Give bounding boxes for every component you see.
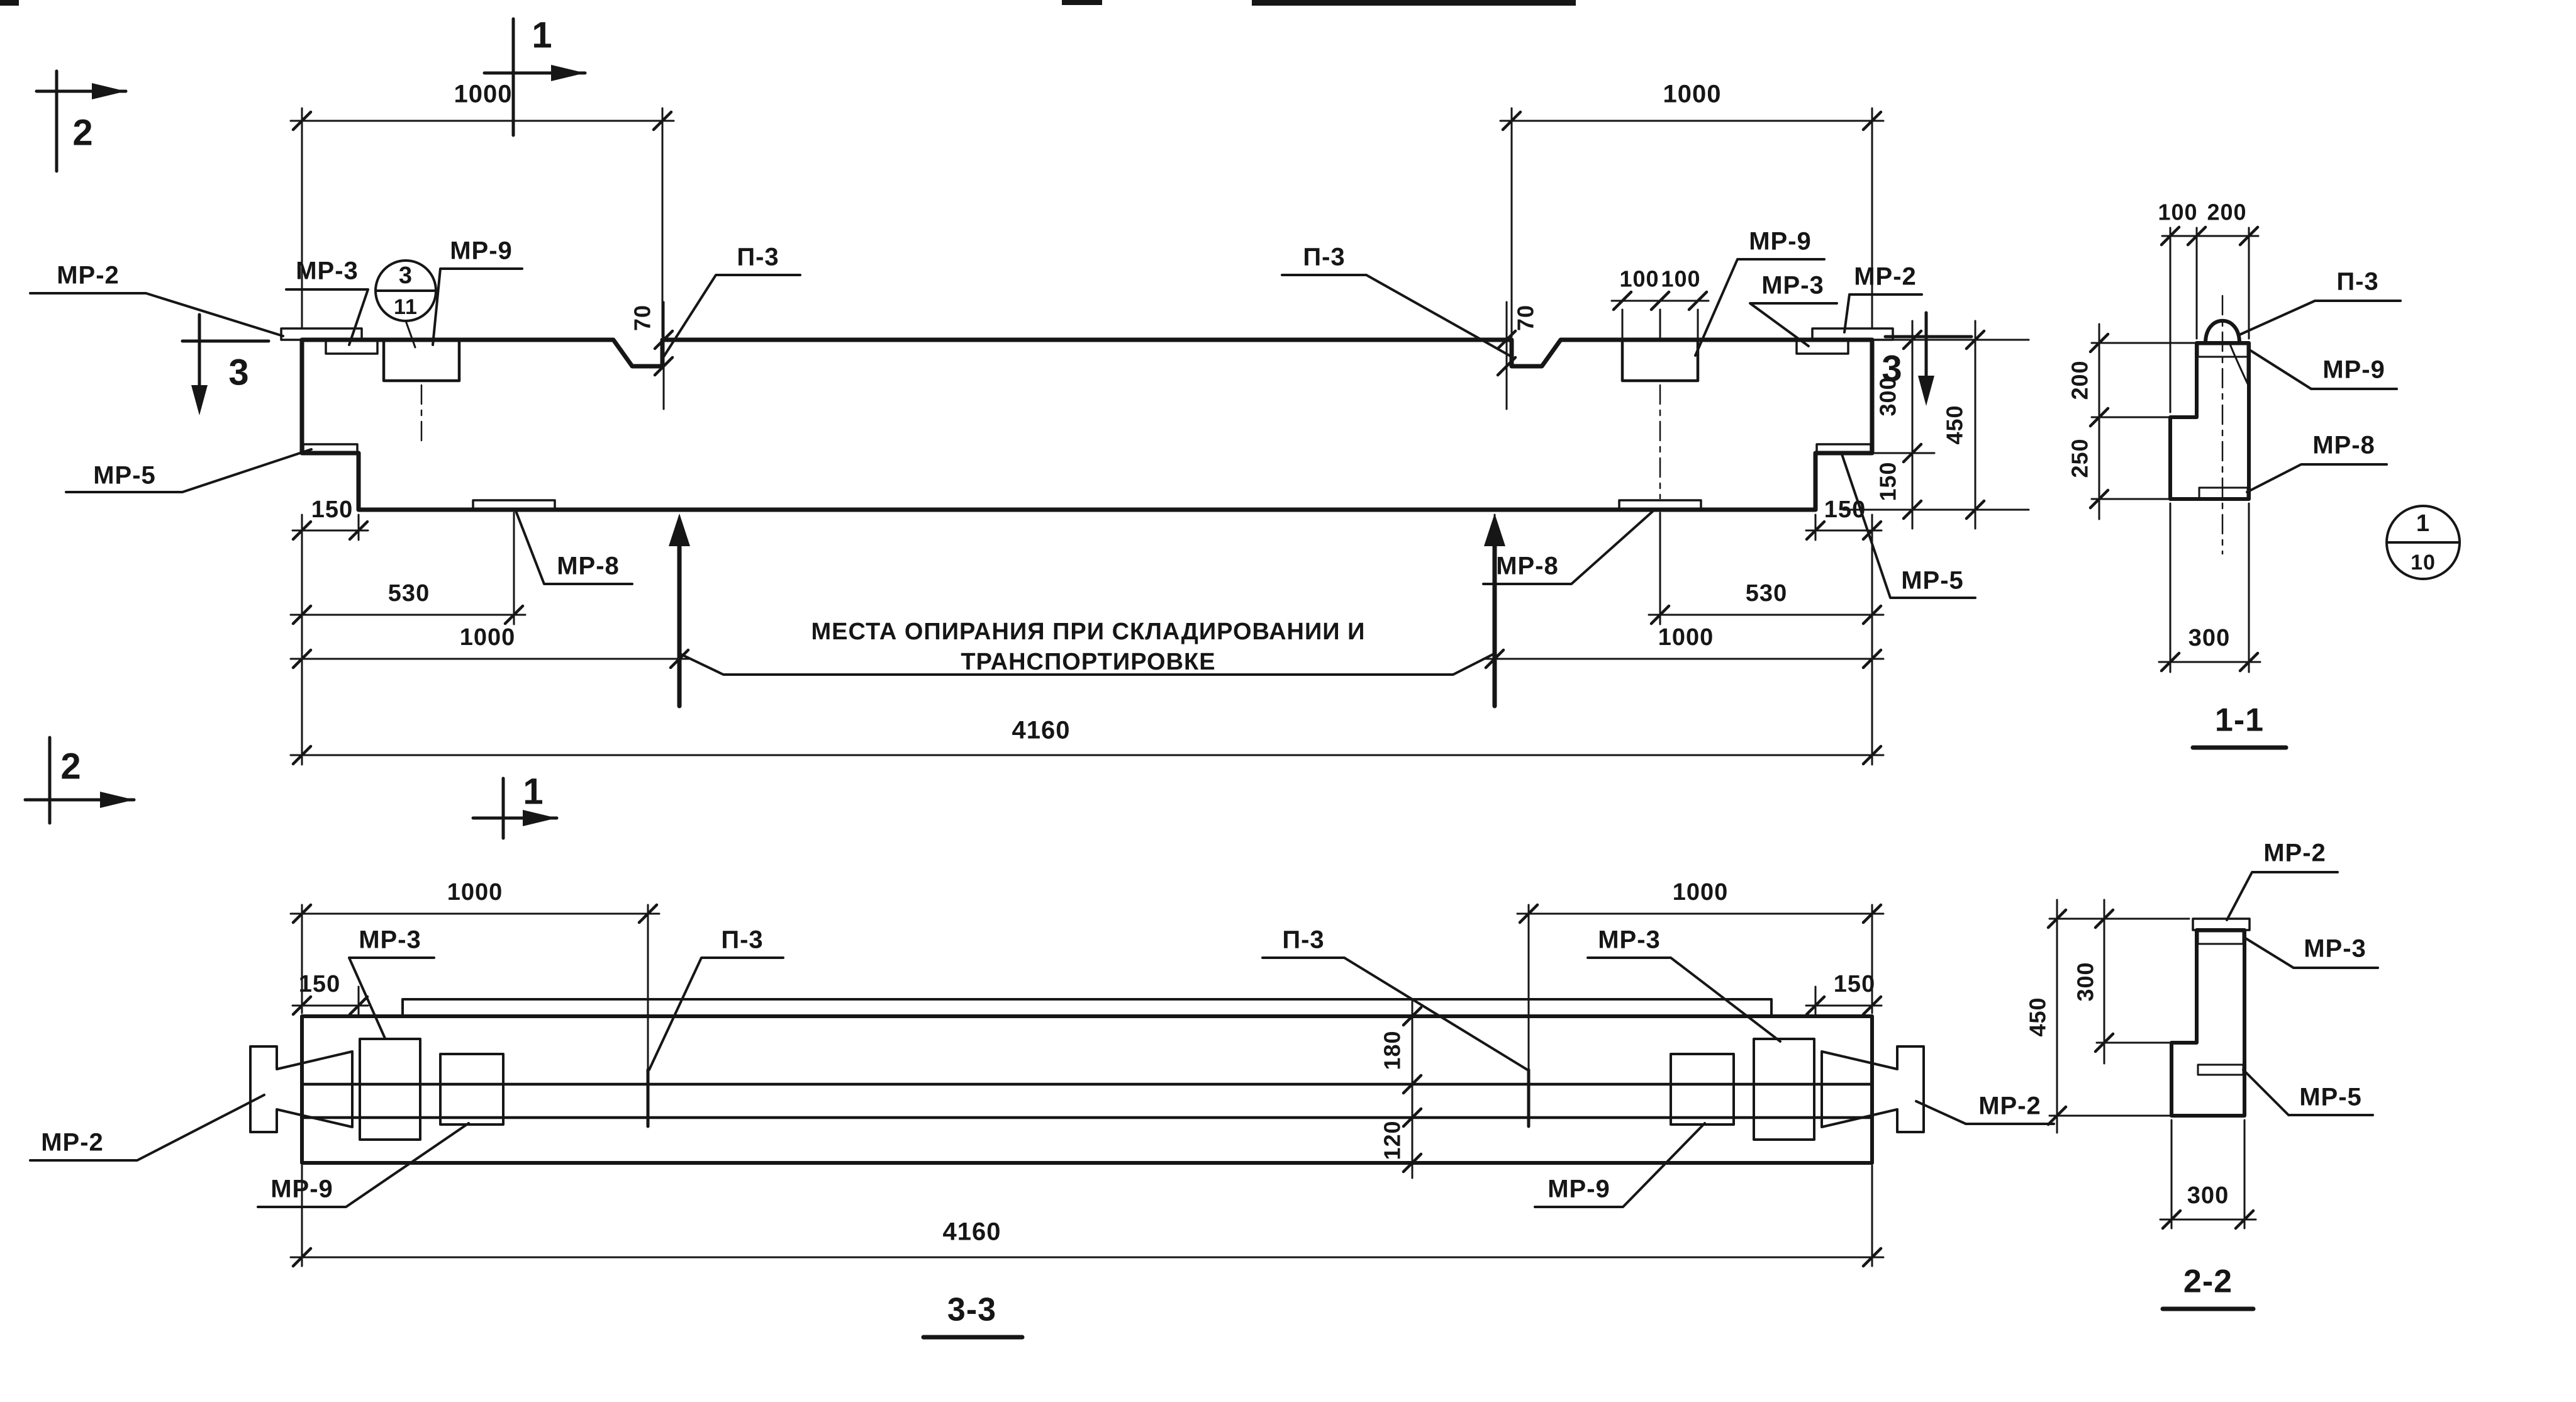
label-mp5-elev-left: МР-5 — [66, 449, 311, 492]
cropped-edge-marks — [0, 0, 1576, 6]
section-1-1-mp9-corner — [2230, 344, 2248, 384]
svg-text:МР-3: МР-3 — [2304, 935, 2367, 963]
blueprint-canvas: 2 2 1 1 3 3 — [0, 0, 2576, 1402]
section-marker-2-bottom-label: 2 — [60, 746, 81, 787]
svg-text:МР-2: МР-2 — [1978, 1092, 2041, 1120]
svg-text:2-2: 2-2 — [2183, 1264, 2233, 1300]
svg-text:МР-5: МР-5 — [93, 462, 156, 490]
elevation-view: 1000 1000 70 70 100 100 — [30, 81, 2029, 765]
plan-title: 3-3 — [923, 1292, 1022, 1337]
dim-1000-top-left: 1000 — [291, 81, 674, 337]
svg-text:МР-8: МР-8 — [557, 552, 620, 580]
dim-text: 120 — [1380, 1120, 1405, 1160]
dim-text: 1000 — [1658, 624, 1714, 651]
dim-70-left: 70 — [630, 302, 672, 409]
dim-450-right: 450 — [1942, 321, 1984, 529]
section-marker-1-top: 1 — [484, 14, 585, 135]
dim-text: 150 — [1824, 496, 1866, 523]
svg-text:МР-2: МР-2 — [41, 1129, 104, 1157]
dim-text: 4160 — [1012, 717, 1071, 744]
svg-text:1-1: 1-1 — [2215, 702, 2264, 739]
dim-text: 1000 — [1673, 879, 1729, 906]
label-mp2-plan-left: МР-2 — [30, 1095, 264, 1160]
section-marker-1-top-label: 1 — [532, 14, 552, 55]
plan-outline — [302, 1016, 1872, 1163]
dim-text: 300 — [2188, 625, 2230, 651]
label-mp9-plan-right: МР-9 — [1535, 1123, 1705, 1207]
label-mp2-elev-right: МР-2 — [1844, 263, 1922, 332]
dim-450-300-sec22: 450 300 — [2025, 900, 2189, 1133]
dim-text: 150 — [299, 971, 340, 997]
label-mp5-sec22: МР-5 — [2243, 1070, 2373, 1115]
label-p3-sec11: П-3 — [2239, 268, 2400, 335]
dim-1000-plan-right: 1000 — [1517, 879, 1883, 1068]
label-mp3-plan-right: МР-3 — [1588, 926, 1780, 1041]
dim-text: 100 — [2158, 199, 2197, 225]
label-mp9-sec11: МР-9 — [2250, 350, 2397, 389]
label-mp3-elev-left: МР-3 — [286, 257, 368, 345]
dim-text: 150 — [1875, 461, 1901, 501]
dim-text: 4160 — [943, 1218, 1001, 1246]
dim-1000-top-right: 1000 — [1500, 81, 1883, 337]
label-mp8-elev-left: МР-8 — [516, 511, 632, 584]
dim-180-120-plan: 180 120 — [1380, 1001, 1475, 1178]
svg-text:МР-8: МР-8 — [2312, 432, 2375, 459]
dim-200-250-left-sec11: 200 250 — [2067, 324, 2197, 519]
svg-text:П-3: П-3 — [1303, 244, 1345, 271]
svg-text:МР-5: МР-5 — [1901, 567, 1964, 595]
label-mp2-sec22: МР-2 — [2227, 839, 2338, 920]
callout-sheet-number: 10 — [2411, 551, 2436, 575]
dim-text: 70 — [1513, 305, 1539, 331]
callout-sheet-number: 11 — [394, 295, 418, 319]
svg-text:МР-8: МР-8 — [1496, 552, 1559, 580]
svg-text:П-3: П-3 — [737, 244, 779, 271]
dim-150-bottom-left: 150 — [293, 496, 368, 765]
label-mp5-elev-right: МР-5 — [1842, 454, 1975, 598]
dim-text: 200 — [2207, 199, 2246, 225]
label-mp3-elev-right: МР-3 — [1750, 272, 1837, 346]
svg-text:П-3: П-3 — [2336, 268, 2378, 296]
svg-text:МР-9: МР-9 — [1749, 228, 1812, 255]
callout-detail-number: 1 — [2416, 510, 2430, 537]
section-marker-2-bottom: 2 — [25, 737, 134, 823]
svg-text:МР-3: МР-3 — [1761, 272, 1824, 300]
dim-70-right: 70 — [1498, 302, 1539, 409]
section-2-2-mp3-hatch — [2198, 931, 2243, 944]
block-mp3-plan-left — [360, 1039, 420, 1140]
section-1-1: 100 200 200 250 П-3 МР-9 МР-8 — [2067, 199, 2460, 748]
svg-text:МР-9: МР-9 — [450, 237, 513, 265]
dim-text: 100 — [1619, 266, 1659, 292]
dim-text: 530 — [1746, 580, 1787, 607]
dim-text: 180 — [1380, 1030, 1405, 1070]
support-note-line2: ТРАНСПОРТИРОВКЕ — [961, 649, 1215, 675]
label-mp9-elev-left: МР-9 — [433, 237, 522, 345]
dim-1000-bottom-left: 1000 — [291, 624, 691, 668]
block-mp9-left — [384, 340, 459, 440]
section-2-2-mp5-hatch — [2198, 1065, 2243, 1075]
svg-text:МР-2: МР-2 — [2263, 839, 2326, 867]
svg-text:МР-9: МР-9 — [2322, 356, 2385, 384]
plan-chamfer-edge — [403, 999, 1771, 1016]
svg-text:МР-5: МР-5 — [2299, 1084, 2362, 1111]
dim-text: 70 — [630, 305, 655, 331]
dim-text: 1000 — [454, 81, 513, 108]
section-marker-2-top: 2 — [36, 71, 126, 171]
svg-text:МР-9: МР-9 — [1547, 1175, 1610, 1203]
label-mp8-elev-right: МР-8 — [1483, 511, 1653, 584]
dim-text: 150 — [1834, 971, 1875, 997]
dim-4160-elevation: 4160 — [291, 717, 1883, 764]
section-2-2-title: 2-2 — [2163, 1264, 2253, 1309]
svg-text:МР-3: МР-3 — [1598, 926, 1661, 954]
dim-text: 300 — [2073, 962, 2099, 1001]
block-mp9-right — [1622, 340, 1698, 498]
label-mp2-plan-right: МР-2 — [1916, 1092, 2054, 1124]
section-1-1-title: 1-1 — [2193, 702, 2286, 748]
callout-detail-number: 3 — [399, 262, 413, 289]
plan-view-3-3: 1000 1000 150 150 180 120 — [30, 879, 2054, 1337]
dim-text: 150 — [311, 496, 353, 523]
beam-outline — [302, 340, 1872, 510]
support-note: МЕСТА ОПИРАНИЯ ПРИ СКЛАДИРОВАНИИ И ТРАНС… — [669, 513, 1505, 706]
dim-100-100-right: 100 100 — [1612, 266, 1709, 339]
beam-working-drawing: 2 2 1 1 3 3 — [0, 0, 2576, 1402]
dim-1000-plan-left: 1000 — [291, 879, 659, 1068]
dim-text: 530 — [388, 580, 430, 607]
block-mp9-plan-right — [1671, 1054, 1734, 1124]
label-mp2-elev-left: МР-2 — [30, 262, 283, 336]
dim-150-plan-right: 150 — [1806, 971, 1882, 1014]
dim-4160-plan: 4160 — [291, 1165, 1883, 1266]
svg-text:МР-2: МР-2 — [57, 262, 120, 289]
section-2-2-outline — [2172, 930, 2244, 1116]
section-marker-3-left-label: 3 — [228, 352, 249, 393]
section-marker-1-bottom: 1 — [473, 771, 557, 838]
support-note-line1: МЕСТА ОПИРАНИЯ ПРИ СКЛАДИРОВАНИИ И — [811, 619, 1366, 645]
label-mp3-plan-left: МР-3 — [349, 926, 434, 1038]
section-marker-2-top-label: 2 — [72, 112, 93, 153]
svg-text:3-3: 3-3 — [947, 1292, 996, 1328]
svg-text:МР-2: МР-2 — [1854, 263, 1917, 291]
dim-text: 1000 — [460, 624, 516, 651]
section-1-1-outline — [2170, 343, 2249, 499]
detail-callout-3-11: 3 11 — [376, 261, 436, 347]
section-marker-3-left: 3 — [182, 315, 269, 415]
label-p3-plan-left: П-3 — [649, 926, 783, 1070]
dim-text: 250 — [2067, 438, 2093, 478]
dim-1000-bottom-right: 1000 — [1483, 515, 1883, 668]
section-2-2: 450 300 МР-2 МР-3 МР-5 300 2-2 — [2025, 839, 2378, 1309]
detail-callout-1-10: 1 10 — [2387, 506, 2460, 579]
dim-text: 450 — [2025, 997, 2051, 1036]
label-mp9-plan-left: МР-9 — [258, 1123, 469, 1207]
dim-text: 300 — [2187, 1182, 2229, 1209]
dim-300-bottom-sec11: 300 — [2159, 503, 2260, 672]
dim-text: 450 — [1942, 405, 1968, 444]
svg-text:МР-3: МР-3 — [296, 257, 359, 285]
svg-text:П-3: П-3 — [1282, 926, 1324, 954]
dim-300-bottom-sec22: 300 — [2160, 1120, 2256, 1228]
svg-text:МР-3: МР-3 — [359, 926, 421, 954]
section-marker-1-bottom-label: 1 — [523, 771, 544, 812]
block-mp9-plan-left — [440, 1054, 503, 1124]
dim-text: 1000 — [1663, 81, 1722, 108]
dim-text: 200 — [2067, 360, 2093, 400]
label-mp3-sec22: МР-3 — [2244, 935, 2378, 968]
dim-text: 1000 — [447, 879, 503, 906]
dim-text: 300 — [1875, 376, 1901, 416]
dim-100-200-top-sec11: 100 200 — [2158, 199, 2258, 412]
dim-text: 100 — [1661, 266, 1700, 292]
label-mp8-sec11: МР-8 — [2247, 432, 2387, 492]
block-mp3-plan-right — [1754, 1039, 1814, 1140]
svg-text:П-3: П-3 — [721, 926, 763, 954]
